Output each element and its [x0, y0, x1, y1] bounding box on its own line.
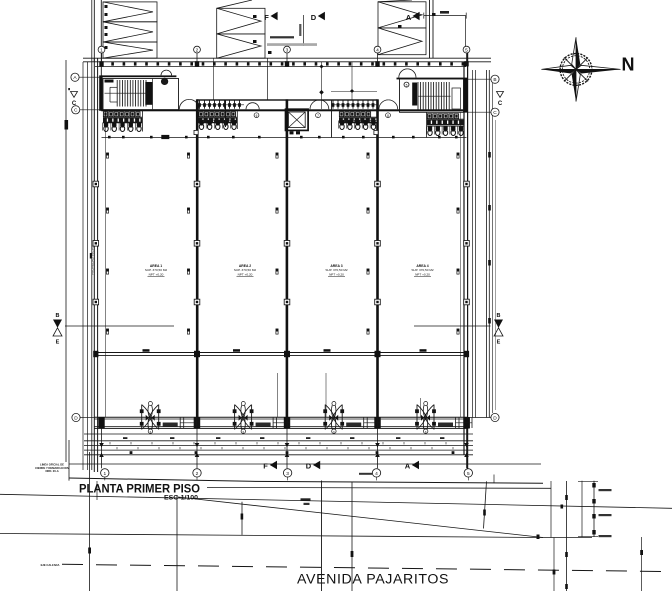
svg-text:C: C	[493, 110, 497, 116]
svg-text:C: C	[498, 101, 503, 107]
svg-text:E: E	[56, 340, 60, 346]
svg-text:7: 7	[317, 114, 319, 118]
svg-text:4: 4	[375, 471, 378, 477]
svg-text:AREA 4: AREA 4	[416, 264, 428, 268]
svg-text:AVENIDA PAJARITOS: AVENIDA PAJARITOS	[297, 572, 449, 588]
svg-text:A: A	[405, 461, 411, 470]
svg-text:3: 3	[286, 471, 289, 477]
svg-text:6: 6	[256, 114, 258, 118]
svg-text:AREA 1: AREA 1	[150, 264, 162, 268]
svg-text:ORD. 20-A: ORD. 20-A	[45, 469, 58, 473]
svg-text:NPT +0,20: NPT +0,20	[238, 273, 253, 277]
svg-text:2: 2	[196, 48, 199, 54]
svg-text:NPT +0,20: NPT +0,20	[415, 273, 430, 277]
svg-text:5: 5	[406, 83, 408, 87]
svg-text:3: 3	[286, 48, 289, 54]
svg-text:B: B	[56, 313, 60, 319]
svg-text:1: 1	[100, 48, 103, 54]
svg-text:PROPIEDAD VECINA: PROPIEDAD VECINA	[91, 245, 95, 275]
svg-text:LINEA OFICIAL DE: LINEA OFICIAL DE	[40, 462, 64, 466]
svg-text:4: 4	[376, 48, 379, 54]
svg-text:SUP. 370,50 M2: SUP. 370,50 M2	[145, 268, 168, 272]
svg-text:EJE CALZADA: EJE CALZADA	[41, 563, 60, 567]
svg-text:2: 2	[196, 471, 199, 477]
svg-text:D: D	[493, 415, 497, 421]
svg-text:B: B	[493, 77, 496, 83]
svg-text:A: A	[406, 13, 412, 22]
svg-text:C: C	[74, 108, 78, 114]
svg-text:B: B	[497, 313, 501, 319]
svg-text:1: 1	[103, 471, 106, 477]
svg-text:NPT +0,20: NPT +0,20	[149, 273, 164, 277]
svg-text:5: 5	[467, 471, 470, 477]
svg-text:F: F	[264, 13, 269, 22]
svg-text:D: D	[74, 415, 78, 421]
svg-text:F: F	[263, 461, 268, 470]
svg-text:N: N	[622, 55, 635, 75]
svg-text:5: 5	[465, 48, 468, 54]
svg-text:D: D	[311, 13, 317, 22]
svg-text:NPT +0,20: NPT +0,20	[329, 273, 344, 277]
svg-text:E: E	[497, 340, 501, 346]
svg-text:D: D	[306, 461, 312, 470]
svg-text:AREA 3: AREA 3	[330, 264, 342, 268]
svg-text:AREA 2: AREA 2	[239, 264, 251, 268]
svg-text:SUP. 370,50 M2: SUP. 370,50 M2	[325, 268, 348, 272]
svg-text:SUP. 370,50 M2: SUP. 370,50 M2	[234, 268, 257, 272]
svg-text:8: 8	[387, 114, 389, 118]
svg-text:CIERRE Y DEMARCACION: CIERRE Y DEMARCACION	[35, 466, 69, 470]
svg-text:SUP. 370,50 M2: SUP. 370,50 M2	[411, 268, 434, 272]
